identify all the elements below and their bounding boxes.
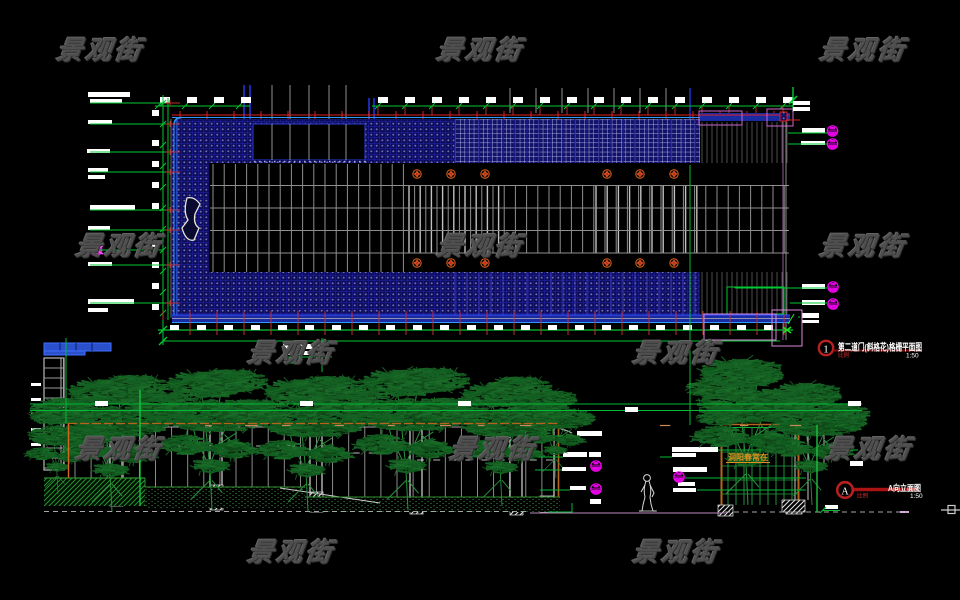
svg-text:A向立面图: A向立面图 [888, 483, 921, 493]
svg-text:洞阳春常在: 洞阳春常在 [728, 452, 768, 462]
svg-text:1: 1 [823, 344, 829, 356]
svg-text:A: A [841, 487, 849, 498]
svg-text:比例: 比例 [857, 492, 869, 500]
svg-text:比例: 比例 [838, 351, 850, 359]
svg-text:1:50: 1:50 [910, 493, 923, 500]
svg-text:1:50: 1:50 [906, 353, 919, 360]
